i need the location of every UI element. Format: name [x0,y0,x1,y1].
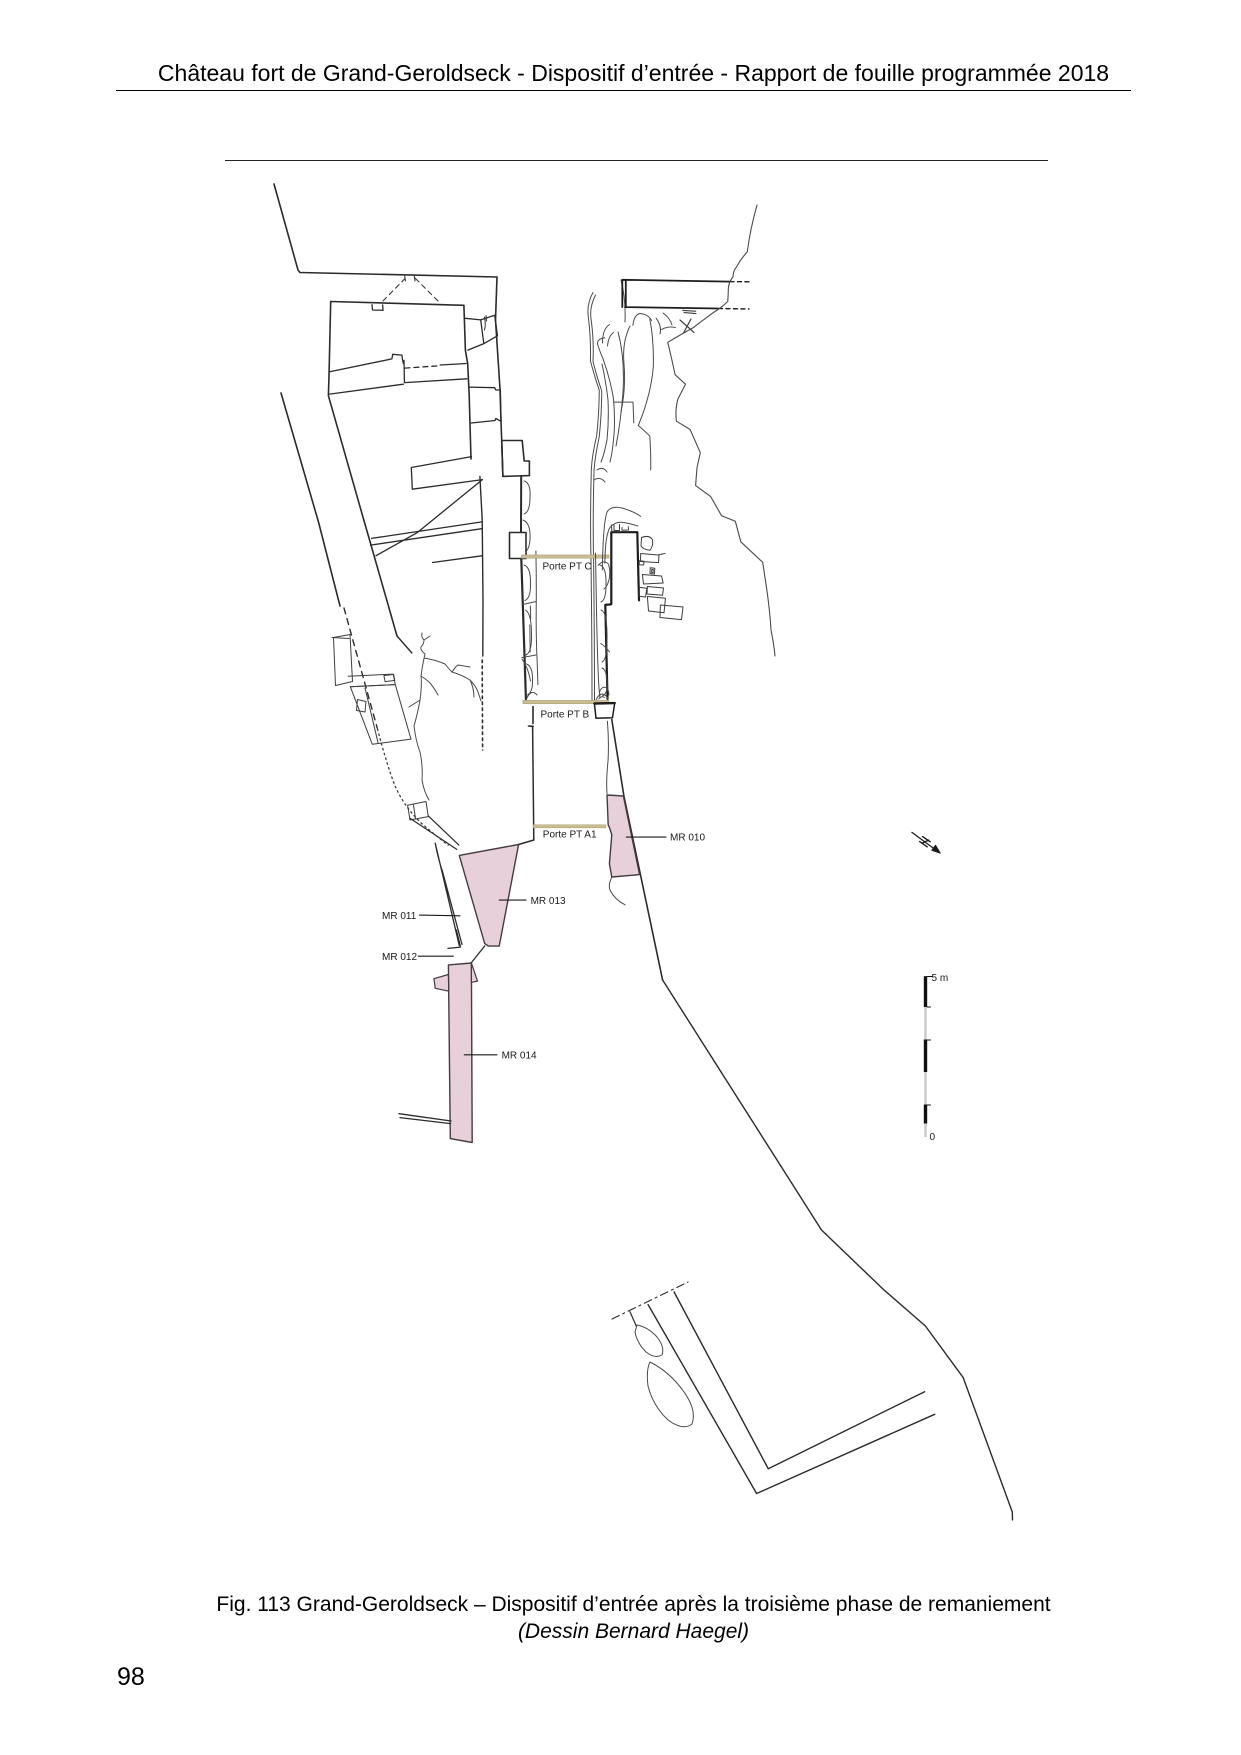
svg-text:MR 013: MR 013 [531,896,566,907]
svg-text:Porte PT C: Porte PT C [543,562,592,573]
svg-text:MR 010: MR 010 [670,833,705,844]
svg-text:5 m: 5 m [932,973,949,984]
svg-text:Porte PT B: Porte PT B [541,710,590,721]
svg-text:MR 014: MR 014 [502,1050,537,1061]
svg-text:MR 012: MR 012 [382,952,417,963]
svg-text:0: 0 [930,1132,936,1143]
svg-text:Porte PT A1: Porte PT A1 [543,830,597,841]
svg-text:MR 011: MR 011 [382,911,417,922]
